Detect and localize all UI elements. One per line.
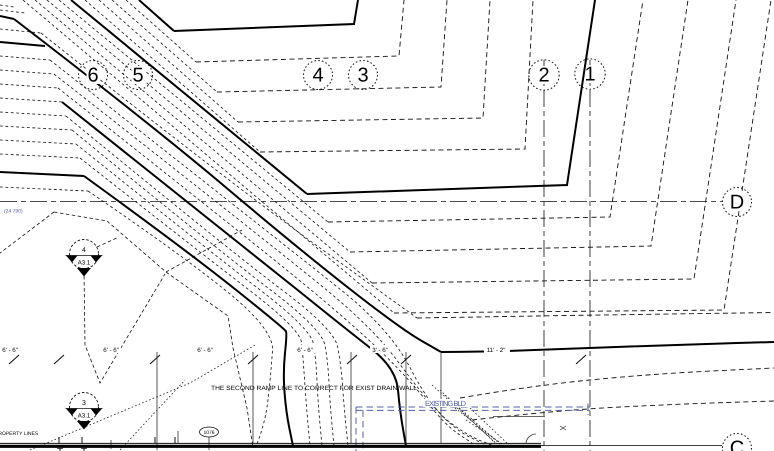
svg-text:1: 1 [584, 64, 595, 86]
svg-text:A3.1: A3.1 [78, 413, 91, 420]
svg-text:5: 5 [132, 65, 143, 87]
svg-text:2: 2 [538, 65, 549, 87]
svg-text:EXISTING BLD: EXISTING BLD [425, 399, 467, 408]
svg-text:3: 3 [82, 400, 86, 407]
svg-text:4: 4 [82, 247, 86, 254]
svg-text:THE SECOND RAMP LINE TO CORREC: THE SECOND RAMP LINE TO CORRECT FOR EXIS… [211, 385, 418, 392]
svg-text:6’ - 6”: 6’ - 6” [103, 347, 119, 354]
svg-text:6’ - 6”: 6’ - 6” [2, 347, 18, 354]
svg-text:D: D [730, 192, 744, 214]
svg-text:4: 4 [312, 65, 323, 87]
svg-text:6: 6 [87, 65, 98, 87]
svg-text:3’ - 6”: 3’ - 6” [372, 347, 388, 354]
svg-text:1076: 1076 [203, 430, 214, 436]
svg-text:(24.790): (24.790) [4, 209, 23, 215]
svg-text:11’ - 2”: 11’ - 2” [487, 347, 506, 354]
svg-text:C: C [730, 438, 744, 451]
svg-text:PROPERTY LINES: PROPERTY LINES [0, 431, 39, 437]
svg-text:A3.1: A3.1 [78, 260, 91, 267]
svg-text:6’ - 6”: 6’ - 6” [297, 347, 313, 354]
svg-text:6’ - 6”: 6’ - 6” [197, 347, 213, 354]
svg-text:3: 3 [357, 65, 368, 87]
